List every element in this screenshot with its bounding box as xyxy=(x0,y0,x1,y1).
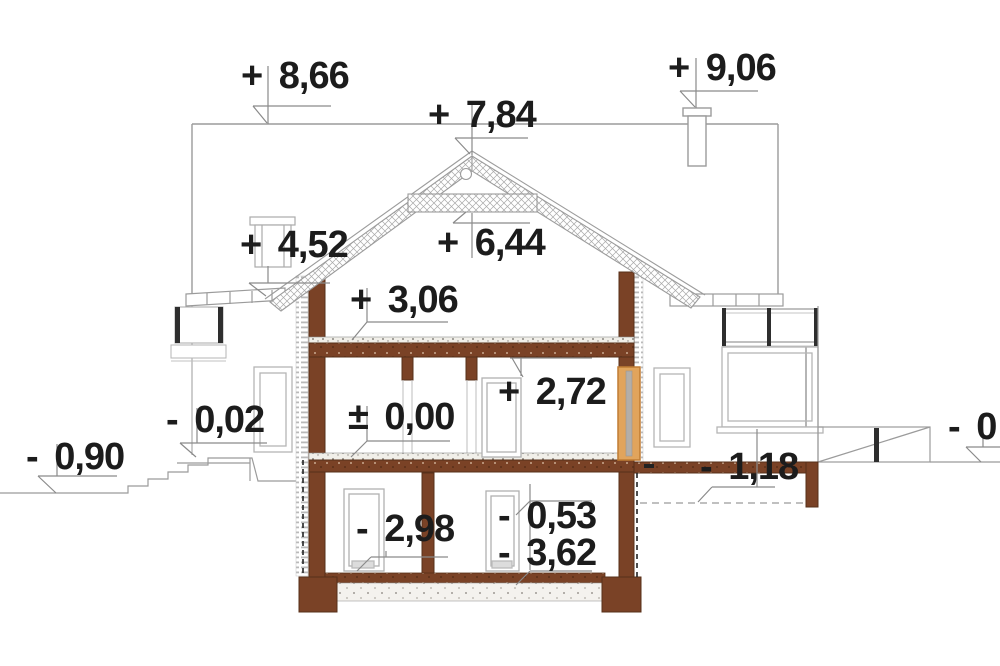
level-label-entry-landing: - 0,02 xyxy=(166,401,264,439)
level-label-ceiling-height: + 2,72 xyxy=(498,373,606,411)
level-label-ground-floor: ± 0,00 xyxy=(348,398,454,436)
level-label-rear-ridge: + 8,66 xyxy=(241,57,349,95)
ground-slab xyxy=(309,453,634,472)
rear-window-railing xyxy=(722,308,818,346)
chimney xyxy=(683,108,711,166)
level-label-side-eave: + 4,52 xyxy=(240,226,348,264)
level-label-terrace-base: - 1,18 xyxy=(700,448,798,486)
section-drawing: + 8,66 + 9,06 + 7,84 + 6,44 + 4,52 + 3,0… xyxy=(0,0,1000,666)
level-label-basement-floor: - 2,98 xyxy=(356,510,454,548)
eave-band-left xyxy=(186,288,285,306)
basement-floor xyxy=(299,573,641,612)
window-upper-left xyxy=(171,307,226,361)
level-label-right-upper: - 0,53 xyxy=(498,497,596,535)
level-label-right-lower: - 3,62 xyxy=(498,534,596,572)
window-right-small xyxy=(654,368,690,447)
level-label-main-ridge: + 7,84 xyxy=(428,96,536,134)
level-label-attic-floor: + 3,06 xyxy=(350,281,458,319)
level-label-chimney-top: + 9,06 xyxy=(668,49,776,87)
attic-slab xyxy=(309,337,634,357)
rear-window-right xyxy=(717,347,823,433)
level-label-collar-beam: + 6,44 xyxy=(437,224,545,262)
level-label-grade-right: - 0 xyxy=(948,408,996,446)
level-label-grade-left: - 0,90 xyxy=(26,438,124,476)
collar-beam xyxy=(408,194,537,212)
timber-door xyxy=(618,367,640,460)
insulation-left xyxy=(296,276,308,576)
